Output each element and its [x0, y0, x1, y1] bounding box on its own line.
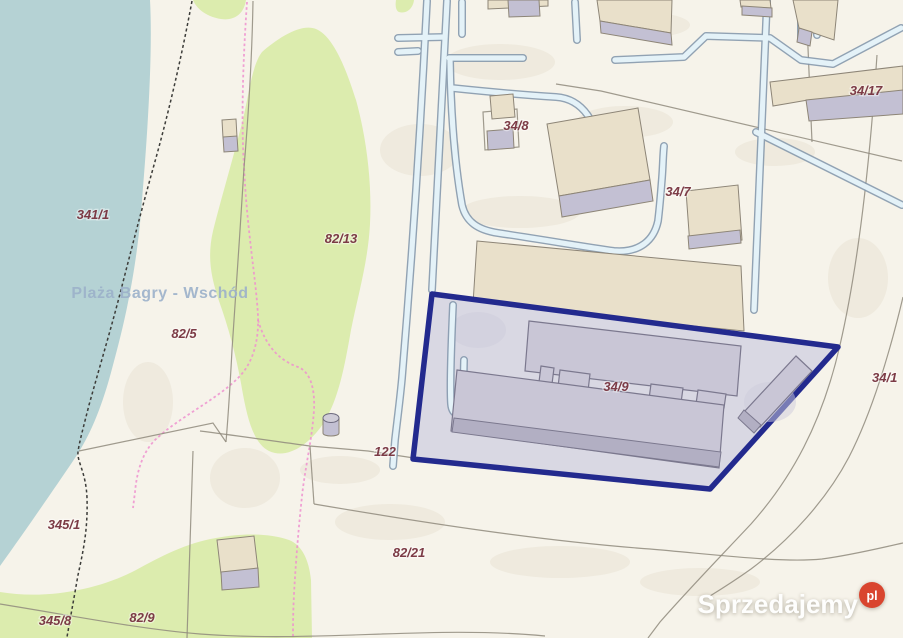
- parcel-label-82-21: 82/21: [393, 545, 426, 560]
- watermark-tld-text: pl: [866, 589, 877, 603]
- parcel-label-34-1: 34/1: [872, 370, 897, 385]
- parcel-label-341-1: 341/1: [77, 207, 110, 222]
- watermark-brand-text: Sprzedajemy: [698, 589, 859, 619]
- parcel-label-34-9: 34/9: [603, 379, 629, 394]
- parcel-label-122: 122: [374, 444, 396, 459]
- parcel-label-34-7: 34/7: [665, 184, 691, 199]
- parcel-label-82-5: 82/5: [171, 326, 197, 341]
- tank-cylinder-icon: [323, 414, 339, 437]
- map-screenshot: Plaża Bagry - Wschód 341/1 82/13 82/5 12…: [0, 0, 903, 638]
- parcel-label-82-9: 82/9: [129, 610, 155, 625]
- parcel-label-345-8: 345/8: [39, 613, 72, 628]
- parcel-label-345-1: 345/1: [48, 517, 81, 532]
- map-canvas[interactable]: Plaża Bagry - Wschód 341/1 82/13 82/5 12…: [0, 0, 903, 638]
- parcel-label-82-13: 82/13: [325, 231, 358, 246]
- parcel-label-34-8: 34/8: [503, 118, 529, 133]
- place-label-plaza-bagry: Plaża Bagry - Wschód: [71, 285, 248, 302]
- parcel-label-34-17: 34/17: [850, 83, 883, 98]
